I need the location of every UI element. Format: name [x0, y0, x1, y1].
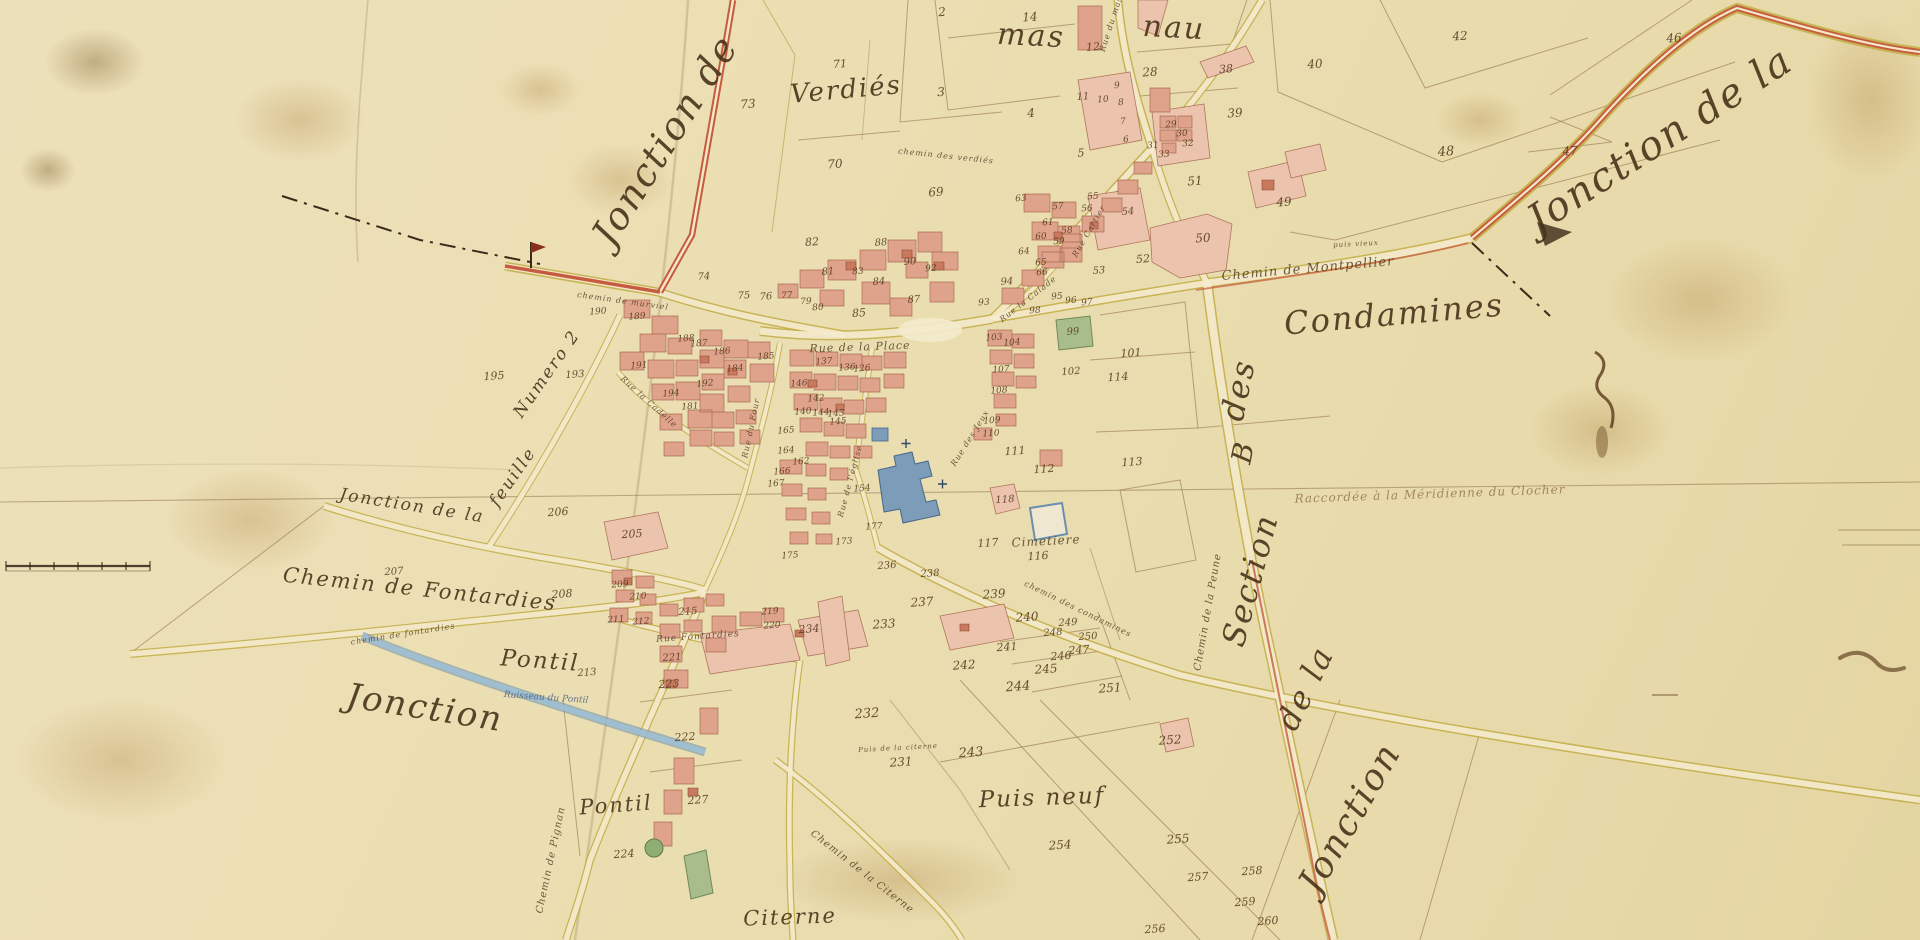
roads-center	[130, 0, 1920, 940]
roads-casing	[130, 0, 1920, 940]
garden-parcel-223	[684, 850, 713, 899]
scale-bar	[6, 561, 150, 571]
cadastral-map: Jonction deVerdiésmasnauJonction de laCo…	[0, 0, 1920, 940]
paper-stains	[15, 18, 1920, 922]
round-garden	[645, 839, 663, 857]
stream-ruisseau	[362, 636, 705, 752]
church-blue-building	[872, 428, 947, 523]
boundary-arrowhead	[1537, 222, 1572, 246]
red-roads	[505, 0, 1920, 940]
map-artwork-layer	[0, 0, 1920, 940]
garden-parcel-99	[1056, 316, 1093, 350]
blue-annex	[872, 428, 888, 441]
cemetery-walled-square	[1030, 503, 1067, 540]
